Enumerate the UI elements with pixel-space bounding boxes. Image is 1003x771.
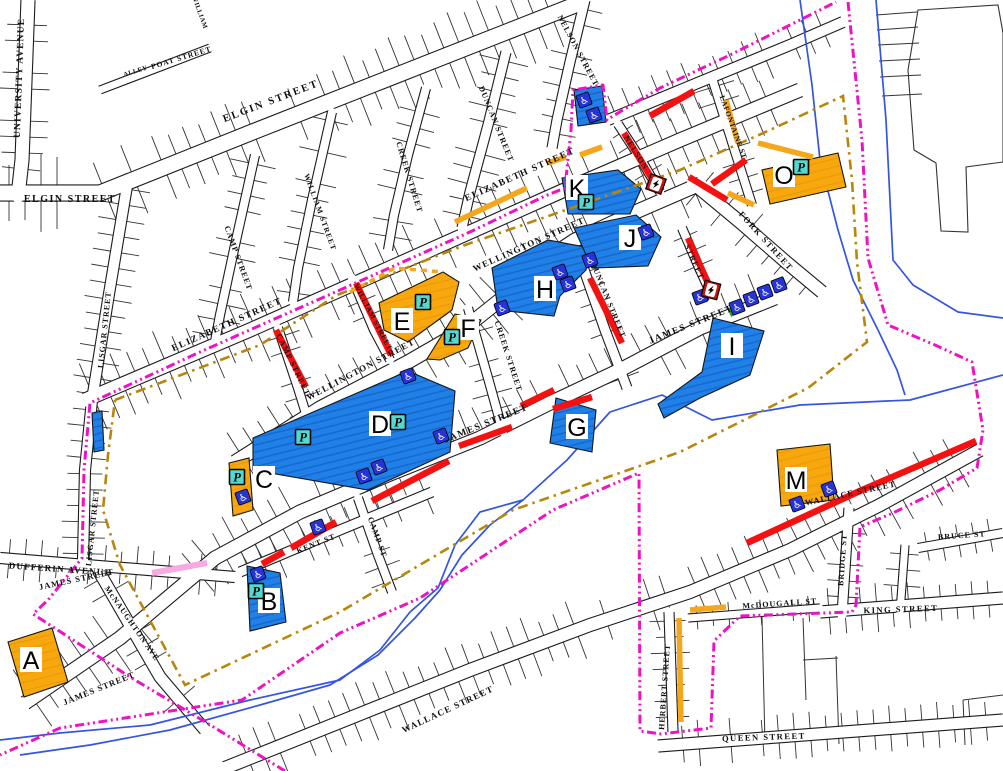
parcel-line bbox=[588, 319, 596, 322]
parcel-line bbox=[390, 275, 399, 295]
street-label: FORK STREET bbox=[737, 209, 796, 273]
parcel-line bbox=[339, 536, 343, 547]
parcel-line bbox=[762, 538, 768, 553]
parcel-line bbox=[443, 211, 460, 215]
parcel-line bbox=[681, 200, 689, 219]
parcel-line bbox=[32, 89, 50, 90]
parcel-line bbox=[481, 324, 493, 339]
parcel-line bbox=[774, 266, 781, 274]
parcel-line bbox=[119, 573, 120, 584]
parcel-line bbox=[169, 555, 170, 566]
parcel-line bbox=[697, 621, 698, 629]
parcel-line bbox=[779, 743, 780, 759]
parking-p-icon: P bbox=[794, 160, 809, 175]
parcel-line bbox=[90, 280, 105, 283]
parcel-line bbox=[222, 517, 234, 540]
parcel-line bbox=[241, 518, 248, 532]
parcel-line bbox=[375, 92, 382, 109]
parcel-line bbox=[271, 353, 282, 357]
parcel-line bbox=[563, 642, 569, 658]
parcel-line bbox=[711, 214, 721, 226]
parcel-line bbox=[106, 348, 121, 350]
parcel-line bbox=[251, 765, 258, 771]
parcel-line bbox=[93, 163, 101, 184]
parcel-line bbox=[279, 487, 291, 509]
parcel-line bbox=[737, 73, 742, 85]
parcel-line bbox=[832, 536, 839, 550]
lot-label-I: I bbox=[729, 333, 736, 361]
parcel-line bbox=[771, 110, 778, 126]
parcel-line bbox=[957, 607, 958, 619]
parcel-line bbox=[712, 134, 720, 153]
parcel-line bbox=[152, 136, 162, 160]
parcel-line bbox=[975, 542, 977, 553]
parcel-line bbox=[268, 722, 276, 741]
parcel-line bbox=[939, 731, 940, 748]
parcel-line bbox=[787, 27, 792, 38]
parcel-line bbox=[353, 530, 359, 543]
parcel-line bbox=[610, 141, 618, 160]
parcel-line bbox=[520, 618, 529, 641]
parcel-line bbox=[267, 406, 279, 425]
parcel-line bbox=[699, 102, 707, 121]
parcel-line bbox=[84, 632, 94, 647]
parcel-line bbox=[559, 134, 575, 137]
parcel-line bbox=[355, 682, 364, 705]
parcel-line bbox=[213, 533, 221, 547]
parcel-line bbox=[989, 605, 990, 618]
creek-line bbox=[876, 0, 1003, 318]
parcel-line bbox=[682, 146, 689, 162]
parcel-line bbox=[67, 456, 81, 457]
parcel-line bbox=[375, 49, 384, 72]
parcel-line bbox=[455, 147, 475, 152]
parcel-line bbox=[73, 408, 86, 409]
parking-p-icon: P bbox=[416, 295, 431, 310]
parcel-line bbox=[728, 602, 729, 611]
parcel-line bbox=[809, 613, 810, 622]
parcel-line bbox=[635, 137, 644, 143]
street-label: KING STREET bbox=[863, 603, 938, 616]
parcel-line bbox=[74, 375, 91, 378]
parcel-line bbox=[816, 14, 821, 26]
parcel-line bbox=[41, 540, 42, 556]
svg-text:P: P bbox=[233, 471, 241, 485]
parcel-line bbox=[317, 270, 325, 289]
parcel-line bbox=[404, 269, 411, 286]
parcel-line bbox=[478, 644, 483, 658]
parcel-line bbox=[497, 388, 512, 392]
parcel-line bbox=[312, 117, 325, 120]
svg-text:P: P bbox=[394, 416, 402, 430]
parcel-line bbox=[183, 686, 194, 696]
street-label: CREEK STREET bbox=[493, 320, 524, 393]
parcel-line bbox=[809, 712, 810, 729]
amber-parking-segment bbox=[690, 607, 726, 610]
parcel-line bbox=[690, 231, 698, 234]
parcel-line bbox=[450, 63, 460, 89]
parcel-line bbox=[985, 702, 986, 715]
city-parking-map: UNIVERSITY AVENUEELGIN STREETELGIN STREE… bbox=[0, 0, 1003, 771]
parcel-line bbox=[968, 700, 969, 716]
parcel-line bbox=[375, 243, 384, 263]
parcel-line bbox=[859, 737, 860, 752]
parcel-line bbox=[889, 706, 890, 723]
parcel-line bbox=[731, 746, 732, 763]
parcel-line bbox=[539, 622, 544, 636]
parcel-line bbox=[347, 259, 354, 276]
parcel-line bbox=[198, 316, 215, 319]
parcel-line bbox=[168, 135, 176, 154]
parcel-line bbox=[473, 395, 488, 399]
parcel-line bbox=[415, 144, 430, 148]
parcel-line bbox=[462, 644, 469, 663]
parking-p-icon: P bbox=[249, 584, 264, 599]
parcel-line bbox=[748, 174, 758, 177]
parcel-line bbox=[182, 169, 190, 188]
parcel-line bbox=[549, 67, 563, 70]
parcel-line bbox=[129, 206, 145, 209]
parcel-line bbox=[230, 290, 242, 293]
lot-label-O: O bbox=[774, 162, 793, 190]
parcel-line bbox=[250, 196, 264, 199]
map-canvas: UNIVERSITY AVENUEELGIN STREETELGIN STREE… bbox=[0, 0, 1003, 771]
parcel-line bbox=[142, 348, 149, 365]
parcel-line bbox=[959, 545, 961, 557]
parcel-line bbox=[907, 570, 920, 571]
parcel-line bbox=[667, 169, 675, 188]
parcel-line bbox=[987, 581, 988, 594]
parcel-line bbox=[688, 567, 695, 583]
parcel-line bbox=[991, 540, 993, 552]
parcel-line bbox=[121, 253, 139, 256]
parcel-line bbox=[891, 586, 892, 601]
svg-text:P: P bbox=[797, 161, 805, 175]
parcel-line bbox=[793, 713, 794, 730]
parcel-line bbox=[116, 284, 131, 287]
parcel-line bbox=[751, 67, 757, 82]
parcel-line bbox=[359, 245, 370, 269]
parcel-line bbox=[182, 127, 190, 148]
parcel-line bbox=[153, 331, 165, 359]
parcel-line bbox=[124, 237, 139, 240]
parcel-line bbox=[825, 36, 830, 48]
parcel-line bbox=[369, 717, 378, 740]
parcel-line bbox=[542, 114, 553, 116]
parcel-line bbox=[167, 577, 168, 588]
parcel-line bbox=[25, 539, 26, 555]
parcel-line bbox=[299, 147, 318, 151]
parcel-line bbox=[578, 636, 586, 658]
parcel-line bbox=[608, 96, 614, 112]
parcel-line bbox=[661, 356, 671, 375]
parcel-line bbox=[743, 83, 751, 103]
parcel-line bbox=[905, 708, 906, 721]
parcel-line bbox=[199, 299, 218, 303]
parcel-line bbox=[987, 519, 989, 531]
parcel-line bbox=[67, 424, 84, 426]
parcel-line bbox=[506, 627, 514, 647]
parcel-line bbox=[127, 221, 145, 224]
parcel-line bbox=[876, 12, 917, 15]
parcel-line bbox=[93, 616, 108, 638]
parcel-line bbox=[84, 328, 97, 330]
parcel-line bbox=[479, 327, 493, 331]
parcel-line bbox=[744, 576, 751, 593]
parcel-line bbox=[232, 176, 245, 179]
red-curb-lines bbox=[152, 91, 976, 573]
parcel-line bbox=[267, 500, 276, 517]
parcel-line bbox=[29, 153, 43, 154]
parcel-line bbox=[761, 720, 762, 732]
svg-text:P: P bbox=[448, 331, 456, 345]
parcel-line bbox=[788, 558, 795, 575]
parcel-line bbox=[973, 606, 974, 619]
parcel-line bbox=[404, 36, 414, 60]
parcel-line bbox=[652, 212, 660, 231]
parking-p-icon: P bbox=[391, 415, 406, 430]
parcel-line bbox=[140, 384, 148, 403]
parcel-line bbox=[722, 79, 727, 92]
parcel-line bbox=[98, 217, 116, 220]
parcel-line bbox=[345, 104, 352, 122]
parcel-line bbox=[69, 639, 81, 657]
parcel-line bbox=[429, 693, 435, 708]
parcel-line bbox=[539, 28, 547, 49]
parcel-line bbox=[811, 42, 816, 54]
parking-p-icon: P bbox=[445, 330, 460, 345]
parcel-line bbox=[729, 179, 739, 182]
parcel-line bbox=[215, 581, 216, 596]
parcel-line bbox=[509, 62, 529, 67]
street-label: POAT STREET bbox=[150, 44, 213, 71]
parcel-line bbox=[945, 477, 953, 492]
parcel-line bbox=[434, 22, 444, 48]
parcel-line bbox=[755, 33, 762, 51]
parcel-line bbox=[701, 557, 709, 577]
parcel-line bbox=[546, 99, 556, 101]
parcel-line bbox=[591, 335, 602, 339]
parcel-line bbox=[151, 576, 152, 590]
parcel-line bbox=[340, 502, 346, 517]
parcel-line bbox=[482, 410, 493, 413]
parcel-line bbox=[796, 48, 801, 59]
parcel-line bbox=[608, 626, 612, 640]
street-william-upper bbox=[293, 112, 332, 302]
parcel-line bbox=[588, 10, 603, 14]
parcel-line bbox=[485, 155, 505, 160]
parcel-line bbox=[9, 539, 10, 553]
parcel-line bbox=[907, 582, 908, 599]
parcel-line bbox=[491, 631, 499, 652]
parcel-line bbox=[214, 353, 225, 378]
parcel-line bbox=[880, 75, 921, 77]
parcel-line bbox=[291, 211, 305, 214]
parcel-line bbox=[492, 374, 501, 377]
parcel-line bbox=[418, 667, 424, 682]
parcel-line bbox=[310, 741, 316, 756]
parcel-line bbox=[762, 617, 765, 744]
parcel-line bbox=[127, 352, 135, 371]
parcel-line bbox=[240, 243, 255, 246]
parcel-line bbox=[696, 245, 706, 249]
parcel-line bbox=[167, 175, 177, 199]
parcel-line bbox=[575, 289, 585, 293]
parcel-line bbox=[633, 115, 640, 132]
lot-label-F: F bbox=[460, 315, 475, 343]
parcel-line bbox=[103, 363, 119, 366]
parcel-line bbox=[108, 332, 121, 334]
parcel-line bbox=[313, 706, 320, 723]
parcel-line bbox=[403, 672, 409, 688]
parcel-line bbox=[287, 226, 301, 229]
parcel-line bbox=[534, 130, 550, 133]
parcel-line bbox=[363, 60, 370, 77]
parcel-line bbox=[343, 693, 350, 711]
parcel-line bbox=[566, 103, 576, 105]
parcel-line bbox=[908, 554, 918, 555]
parcel-line bbox=[538, 176, 545, 191]
parcel-line bbox=[269, 535, 276, 552]
parcel-line bbox=[405, 80, 416, 108]
svg-text:P: P bbox=[299, 431, 307, 445]
parcel-line bbox=[857, 710, 858, 725]
parcel-line bbox=[766, 61, 773, 79]
parcel-line bbox=[884, 585, 898, 586]
parcel-line bbox=[543, 82, 560, 86]
parcel-line bbox=[434, 219, 442, 237]
parcel-line bbox=[923, 732, 924, 748]
parcel-line bbox=[464, 57, 476, 87]
parcel-line bbox=[28, 170, 40, 171]
parcel-line bbox=[105, 545, 106, 561]
parcel-line bbox=[71, 440, 83, 441]
parcel-line bbox=[464, 12, 473, 36]
parcel-line bbox=[799, 287, 806, 295]
parcel-line bbox=[132, 190, 150, 193]
parcel-line bbox=[426, 359, 436, 377]
parcel-line bbox=[524, 34, 536, 64]
amber-parking-segment bbox=[580, 147, 602, 155]
parcel-line bbox=[565, 602, 573, 624]
parcel-line bbox=[420, 129, 434, 133]
parcel-line bbox=[444, 687, 449, 700]
parcel-line bbox=[907, 733, 908, 746]
parcel-line bbox=[225, 207, 239, 210]
parcel-line bbox=[385, 671, 394, 693]
parcel-line bbox=[841, 713, 842, 726]
parcel-line bbox=[116, 581, 129, 588]
parcel-line bbox=[928, 551, 930, 561]
parcel-line bbox=[496, 6, 503, 25]
parcel-line bbox=[283, 529, 292, 546]
lot-label-G: G bbox=[567, 414, 586, 442]
parcel-line bbox=[36, 704, 51, 727]
parcel-line bbox=[286, 399, 297, 402]
parcel-line bbox=[469, 364, 479, 367]
parcel-line bbox=[111, 316, 125, 318]
parcel-line bbox=[80, 343, 95, 345]
parcel-line bbox=[98, 233, 113, 236]
parcel-line bbox=[211, 111, 221, 136]
parcel-line bbox=[2, 152, 16, 153]
parcel-line bbox=[254, 180, 267, 183]
parcel-line bbox=[301, 121, 308, 139]
parcel-line bbox=[427, 499, 433, 514]
parcel-line bbox=[827, 596, 838, 597]
parcel-line bbox=[325, 735, 332, 752]
parcel-line bbox=[255, 544, 261, 558]
parcel-line bbox=[281, 383, 292, 387]
parcel-line bbox=[135, 664, 146, 670]
parcel-line bbox=[699, 749, 700, 766]
parcel-line bbox=[320, 184, 336, 188]
parcel-line bbox=[811, 740, 812, 757]
parcel-line bbox=[803, 551, 814, 572]
parcel-line bbox=[638, 86, 643, 99]
parcel-line bbox=[296, 195, 308, 198]
parcel-line bbox=[803, 618, 806, 700]
parcel-line bbox=[653, 119, 662, 140]
parcel-line bbox=[378, 184, 396, 188]
parcel-line bbox=[199, 124, 206, 142]
parcel-line bbox=[279, 257, 295, 260]
parcel-line bbox=[795, 742, 796, 759]
parcel-line bbox=[551, 50, 567, 54]
parcel-line bbox=[121, 145, 132, 172]
parcel-line bbox=[953, 705, 954, 718]
lot-label-M: M bbox=[786, 467, 807, 495]
parcel-line bbox=[763, 744, 764, 756]
parcel-line bbox=[332, 263, 341, 282]
parcel-line bbox=[93, 595, 106, 602]
parcel-line bbox=[227, 191, 241, 194]
parcel-line bbox=[761, 256, 769, 265]
parcel-line bbox=[550, 204, 557, 219]
parcel-line bbox=[600, 600, 604, 614]
parcel-line bbox=[155, 378, 162, 395]
parcel-line bbox=[773, 564, 779, 579]
parcel-line bbox=[398, 511, 402, 521]
parcel-line bbox=[729, 583, 736, 600]
parcel-line bbox=[30, 137, 48, 138]
parcel-line bbox=[390, 86, 399, 109]
parcel-line bbox=[30, 121, 48, 122]
parcel-line bbox=[230, 159, 248, 163]
svg-text:P: P bbox=[582, 196, 590, 210]
lot-label-C: C bbox=[255, 466, 273, 494]
parcel-line bbox=[307, 247, 321, 250]
parcel-line bbox=[93, 248, 111, 251]
parcel-line bbox=[397, 123, 411, 127]
parcel-line bbox=[675, 349, 686, 369]
parcel-line bbox=[434, 662, 439, 675]
parcel-line bbox=[829, 617, 830, 634]
parcel-line bbox=[654, 611, 660, 630]
parcel-line bbox=[85, 295, 103, 298]
parcel-line bbox=[859, 587, 860, 603]
parcel-line bbox=[299, 714, 305, 729]
parcel-line bbox=[384, 169, 400, 173]
parcel-line bbox=[613, 134, 619, 138]
parcel-line bbox=[861, 615, 862, 631]
parcel-line bbox=[383, 518, 387, 528]
parcel-line bbox=[209, 253, 228, 257]
parcel-line bbox=[525, 0, 533, 13]
accessible-parking-icon: ♿ bbox=[771, 277, 788, 294]
parcel-line bbox=[906, 586, 920, 587]
parcel-line bbox=[364, 553, 373, 556]
